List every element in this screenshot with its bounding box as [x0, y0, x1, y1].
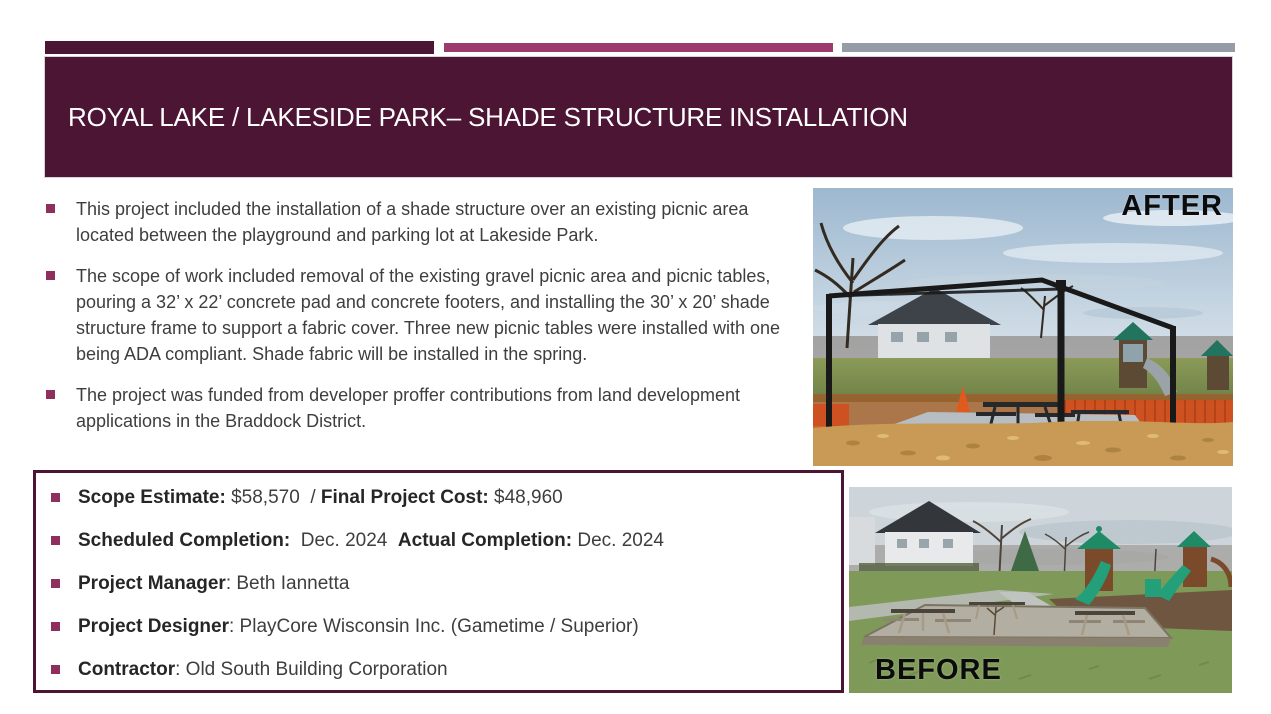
accent-bar-magenta [444, 43, 833, 52]
bullet-square-icon [51, 622, 60, 631]
bullet-square-icon [51, 579, 60, 588]
detail-value: Dec. 2024 [290, 530, 398, 551]
detail-label: Project Manager [78, 573, 226, 594]
after-photo: AFTER [813, 188, 1233, 466]
bullet-item: The scope of work included removal of th… [45, 263, 807, 367]
detail-label: Scope Estimate: [78, 487, 226, 508]
detail-value: $58,570 / [226, 487, 321, 508]
detail-label: Project Designer [78, 616, 229, 637]
detail-row: Project Manager: Beth Iannetta [51, 571, 831, 597]
slide-title: ROYAL LAKE / LAKESIDE PARK– SHADE STRUCT… [45, 102, 908, 133]
detail-row: Scope Estimate: $58,570 / Final Project … [51, 485, 831, 511]
detail-label: Scheduled Completion: [78, 530, 290, 551]
bullet-text: This project included the installation o… [76, 199, 748, 245]
bullet-square-icon [46, 271, 55, 280]
details-box: Scope Estimate: $58,570 / Final Project … [33, 470, 844, 693]
bullet-square-icon [51, 536, 60, 545]
detail-row: Project Designer: PlayCore Wisconsin Inc… [51, 614, 831, 640]
bullet-item: The project was funded from developer pr… [45, 382, 807, 434]
detail-label: Contractor [78, 659, 175, 680]
slide: ROYAL LAKE / LAKESIDE PARK– SHADE STRUCT… [0, 0, 1271, 714]
after-label: AFTER [1121, 190, 1223, 223]
accent-bar-plum [45, 41, 434, 54]
hedge [859, 563, 979, 572]
bullet-list: This project included the installation o… [45, 196, 807, 449]
bullet-square-icon [46, 204, 55, 213]
detail-value: : PlayCore Wisconsin Inc. (Gametime / Su… [229, 616, 639, 637]
mulch-foreground [813, 421, 1233, 466]
after-photo-scene [813, 188, 1233, 466]
bullet-item: This project included the installation o… [45, 196, 807, 248]
bullet-square-icon [46, 390, 55, 399]
bullet-square-icon [51, 493, 60, 502]
detail-value: Dec. 2024 [572, 530, 664, 551]
detail-value: : Beth Iannetta [226, 573, 350, 594]
detail-row: Contractor: Old South Building Corporati… [51, 657, 831, 683]
detail-label: Actual Completion: [398, 530, 572, 551]
before-label: BEFORE [875, 654, 1002, 687]
accent-bar-gray [842, 43, 1235, 52]
before-photo: BEFORE [849, 487, 1232, 693]
detail-value: $48,960 [489, 487, 563, 508]
title-banner: ROYAL LAKE / LAKESIDE PARK– SHADE STRUCT… [45, 57, 1232, 177]
detail-value: : Old South Building Corporation [175, 659, 448, 680]
detail-row: Scheduled Completion: Dec. 2024 Actual C… [51, 528, 831, 554]
bullet-text: The project was funded from developer pr… [76, 385, 740, 431]
bullet-square-icon [51, 665, 60, 674]
bullet-text: The scope of work included removal of th… [76, 266, 780, 364]
detail-label: Final Project Cost: [321, 487, 489, 508]
